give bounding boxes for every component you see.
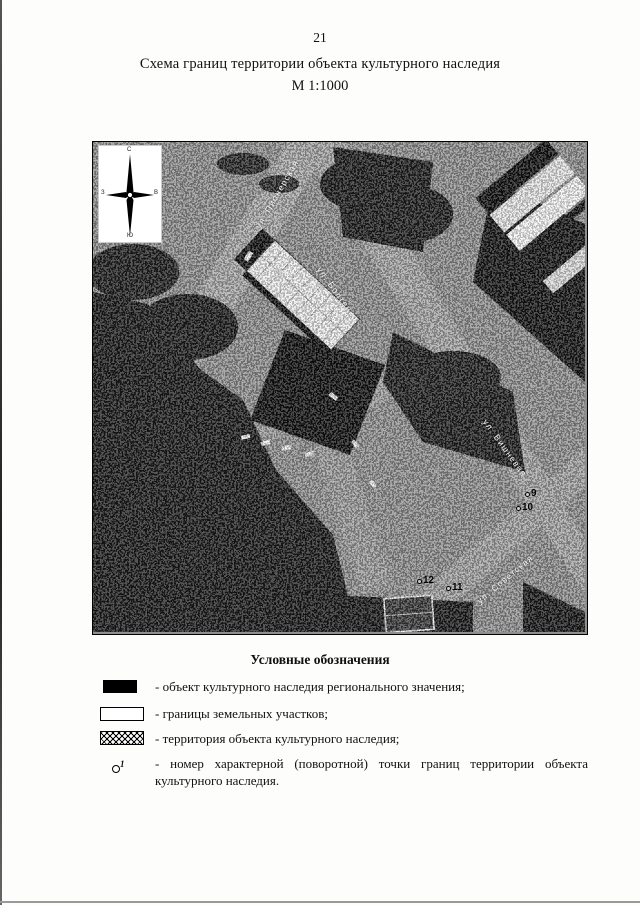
- legend-title: Условные обозначения: [0, 652, 640, 668]
- north-arrow-icon: [99, 146, 161, 242]
- boundary-point-9: 9: [531, 488, 537, 499]
- boundary-point-10: 10: [522, 502, 533, 513]
- point-circle-icon: [112, 765, 120, 773]
- cross-hatch-swatch-icon: [100, 731, 144, 745]
- point-marker-icon: 1: [112, 761, 142, 775]
- legend-item-label: - территория объекта культурного наследи…: [155, 730, 588, 747]
- black-rect-swatch-icon: [103, 680, 137, 693]
- compass-east-label: В: [154, 190, 158, 196]
- boundary-point-11: 11: [452, 582, 463, 593]
- point-number-label: 1: [120, 759, 125, 769]
- compass-box: С Ю З В: [98, 145, 162, 243]
- scan-bottom-line: [0, 901, 640, 903]
- legend-item-label: - номер характерной (поворотной) точки г…: [155, 755, 588, 789]
- aerial-map: С Ю З В ул. Пионерская ул. Болтенко ул. …: [92, 141, 588, 635]
- scan-edge-line: [0, 0, 2, 905]
- compass-north-label: С: [127, 147, 131, 153]
- aerial-map-graphic: [93, 142, 585, 632]
- map-scale-label: М 1:1000: [0, 78, 640, 95]
- legend-item-label: - границы земельных участков;: [155, 705, 588, 722]
- legend-item-label: - объект культурного наследия региональн…: [155, 678, 588, 695]
- compass-south-label: Ю: [127, 233, 133, 239]
- page-title: Схема границ территории объекта культурн…: [0, 56, 640, 73]
- outlined-rect-swatch-icon: [100, 707, 144, 721]
- compass-west-label: З: [101, 190, 105, 196]
- boundary-point-12: 12: [423, 575, 434, 586]
- page-number: 21: [0, 30, 640, 46]
